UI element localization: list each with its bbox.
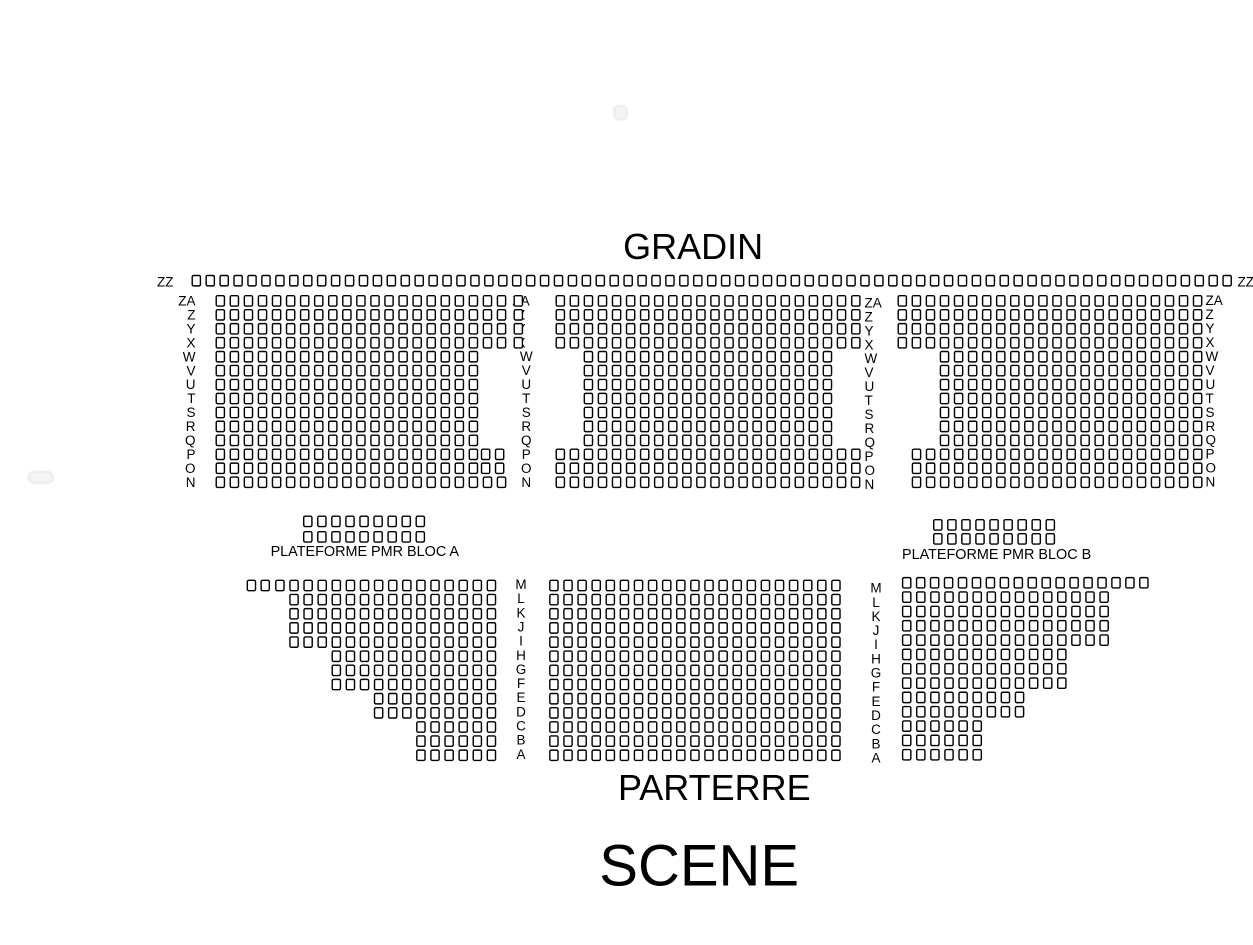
svg-text:S: S bbox=[865, 407, 874, 422]
svg-text:O: O bbox=[865, 463, 876, 478]
svg-text:N: N bbox=[186, 475, 196, 490]
svg-text:V: V bbox=[522, 363, 531, 378]
svg-text:T: T bbox=[865, 393, 873, 408]
svg-text:T: T bbox=[187, 391, 195, 406]
svg-text:P: P bbox=[522, 447, 531, 462]
svg-text:M: M bbox=[515, 577, 526, 592]
svg-text:U: U bbox=[186, 377, 196, 392]
svg-text:Q: Q bbox=[185, 433, 196, 448]
svg-text:G: G bbox=[871, 666, 882, 681]
svg-text:Y: Y bbox=[865, 323, 874, 338]
svg-text:X: X bbox=[1206, 335, 1215, 350]
svg-text:L: L bbox=[517, 591, 525, 606]
svg-text:S: S bbox=[522, 405, 531, 420]
svg-text:PARTERRE: PARTERRE bbox=[618, 767, 811, 808]
svg-text:C: C bbox=[871, 722, 881, 737]
svg-text:ZZ: ZZ bbox=[157, 274, 174, 289]
svg-text:J: J bbox=[873, 623, 880, 638]
svg-text:ZA: ZA bbox=[865, 295, 882, 310]
svg-text:T: T bbox=[1206, 391, 1214, 406]
svg-text:PLATEFORME PMR BLOC B: PLATEFORME PMR BLOC B bbox=[902, 547, 1091, 563]
svg-text:H: H bbox=[516, 648, 526, 663]
svg-text:W: W bbox=[1206, 349, 1219, 364]
svg-text:V: V bbox=[1206, 363, 1215, 378]
svg-text:C: C bbox=[516, 719, 526, 734]
svg-text:D: D bbox=[871, 708, 881, 723]
svg-text:P: P bbox=[865, 449, 874, 464]
svg-text:R: R bbox=[1206, 419, 1216, 434]
svg-text:N: N bbox=[521, 475, 531, 490]
svg-text:R: R bbox=[521, 419, 531, 434]
svg-text:V: V bbox=[865, 365, 874, 380]
svg-text:G: G bbox=[516, 662, 527, 677]
svg-text:SCENE: SCENE bbox=[599, 834, 799, 899]
svg-text:A: A bbox=[516, 747, 525, 762]
svg-text:B: B bbox=[871, 736, 880, 751]
svg-text:Y: Y bbox=[186, 321, 195, 336]
svg-text:V: V bbox=[186, 363, 195, 378]
svg-text:L: L bbox=[872, 595, 880, 610]
svg-text:Z: Z bbox=[187, 307, 195, 322]
svg-text:S: S bbox=[1206, 405, 1215, 420]
svg-text:K: K bbox=[871, 609, 880, 624]
svg-text:R: R bbox=[186, 419, 196, 434]
svg-text:P: P bbox=[1206, 447, 1215, 462]
svg-text:W: W bbox=[183, 349, 196, 364]
svg-text:ZA: ZA bbox=[178, 294, 195, 309]
svg-text:ZA: ZA bbox=[1206, 293, 1223, 308]
svg-text:X: X bbox=[865, 337, 874, 352]
svg-text:F: F bbox=[872, 680, 880, 695]
svg-text:N: N bbox=[1206, 475, 1216, 490]
svg-text:E: E bbox=[871, 694, 880, 709]
svg-text:PLATEFORME PMR BLOC A: PLATEFORME PMR BLOC A bbox=[271, 544, 460, 560]
svg-text:I: I bbox=[874, 637, 878, 652]
svg-text:B: B bbox=[516, 733, 525, 748]
svg-text:U: U bbox=[1206, 377, 1216, 392]
svg-text:O: O bbox=[1206, 461, 1217, 476]
svg-text:GRADIN: GRADIN bbox=[623, 226, 763, 267]
svg-text:Z: Z bbox=[1206, 307, 1214, 322]
svg-text:Z: Z bbox=[865, 309, 873, 324]
svg-text:U: U bbox=[521, 377, 531, 392]
svg-text:E: E bbox=[516, 690, 525, 705]
svg-text:A: A bbox=[871, 750, 880, 765]
svg-text:W: W bbox=[520, 349, 533, 364]
svg-text:P: P bbox=[186, 447, 195, 462]
svg-text:Y: Y bbox=[1206, 321, 1215, 336]
svg-text:M: M bbox=[870, 581, 881, 596]
svg-text:Q: Q bbox=[865, 435, 876, 450]
svg-text:N: N bbox=[865, 477, 875, 492]
svg-text:R: R bbox=[865, 421, 875, 436]
svg-text:D: D bbox=[516, 704, 526, 719]
svg-text:Q: Q bbox=[1206, 433, 1217, 448]
svg-text:T: T bbox=[522, 391, 530, 406]
svg-text:K: K bbox=[516, 605, 525, 620]
svg-text:S: S bbox=[186, 405, 195, 420]
svg-text:ZZ: ZZ bbox=[1238, 274, 1253, 289]
svg-text:Q: Q bbox=[521, 433, 532, 448]
svg-text:J: J bbox=[518, 619, 525, 634]
svg-text:I: I bbox=[519, 634, 523, 649]
svg-text:W: W bbox=[865, 351, 878, 366]
svg-text:H: H bbox=[871, 651, 881, 666]
svg-text:X: X bbox=[186, 335, 195, 350]
svg-text:U: U bbox=[865, 379, 875, 394]
svg-text:O: O bbox=[521, 461, 532, 476]
svg-text:O: O bbox=[185, 461, 196, 476]
svg-text:F: F bbox=[517, 676, 525, 691]
